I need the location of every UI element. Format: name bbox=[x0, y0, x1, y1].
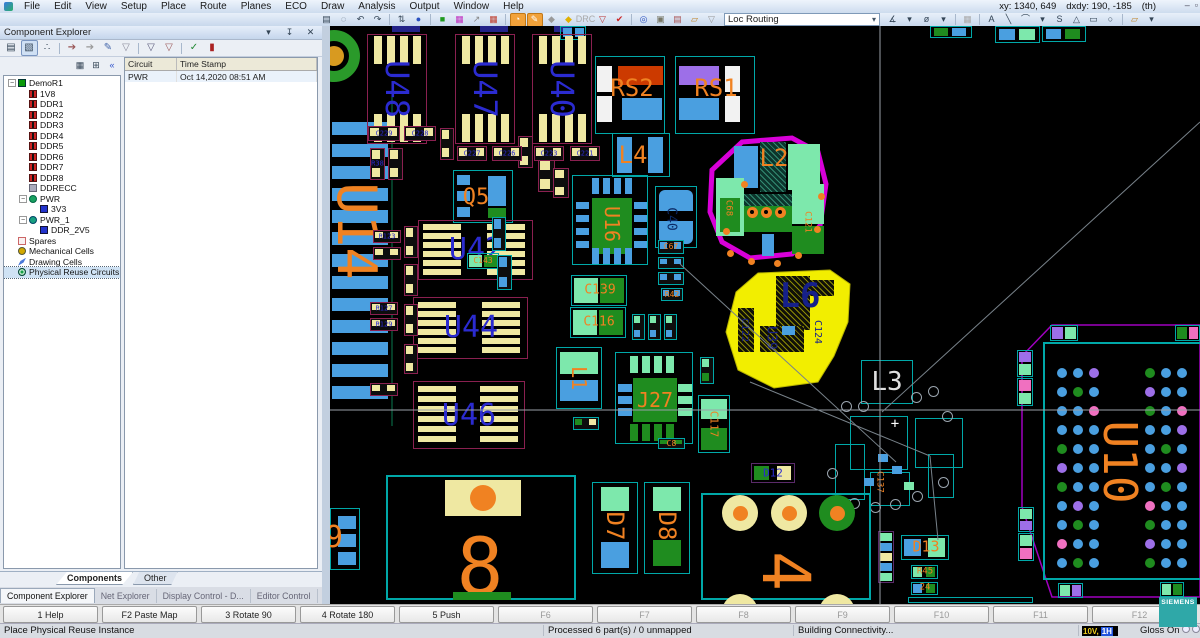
pcb-shape bbox=[782, 326, 795, 335]
menu-planes[interactable]: Planes bbox=[234, 1, 279, 12]
filter-icon[interactable]: ▽ bbox=[704, 13, 720, 27]
angle-mode-icon[interactable]: ∡ bbox=[885, 13, 901, 27]
tab-other[interactable]: Other bbox=[133, 572, 178, 585]
pad-circle bbox=[912, 491, 923, 502]
pcb-shape bbox=[934, 28, 948, 36]
ckt-icon bbox=[29, 163, 37, 171]
dd-icon[interactable]: ▾ bbox=[1035, 13, 1051, 27]
pad-circle bbox=[841, 401, 852, 412]
grid-snap-icon[interactable]: ▦ bbox=[960, 13, 976, 27]
pcb-shape bbox=[913, 584, 922, 593]
layers-icon[interactable]: ▦ bbox=[452, 13, 468, 27]
pcb-shape bbox=[653, 487, 681, 511]
undo-icon[interactable]: ↶ bbox=[353, 13, 369, 27]
main-toolbar: ▤◌↶↷⇅●■▦↗▦◔✎◆◆DRC▽✔◎▣▤▱▽ Loc Routing ▾ ∡… bbox=[0, 13, 1200, 26]
circuit-table: CircuitTime StampPWROct 14,2020 08:51 AM bbox=[124, 57, 318, 569]
pcb-shape bbox=[633, 378, 677, 422]
pcb-shape bbox=[880, 543, 892, 551]
menu-output[interactable]: Output bbox=[403, 1, 447, 12]
pad-circle bbox=[470, 485, 496, 511]
pcb-shape bbox=[725, 96, 740, 122]
ckt-icon bbox=[29, 142, 37, 150]
tree-item-1v8[interactable]: 1V8 bbox=[4, 89, 120, 100]
dd-icon[interactable]: ▾ bbox=[902, 13, 918, 27]
pcb-shape bbox=[725, 66, 740, 92]
ckt-icon bbox=[29, 132, 37, 140]
pad-circle bbox=[741, 181, 748, 188]
pad-circle bbox=[890, 499, 901, 510]
pcb-shape bbox=[762, 234, 774, 256]
pad-circle bbox=[818, 193, 825, 200]
pad-circle bbox=[723, 228, 730, 235]
menu-bar: FileEditViewSetupPlaceRoutePlanesECODraw… bbox=[0, 0, 1200, 13]
ckt-icon bbox=[29, 90, 37, 98]
table-header-circuit[interactable]: Circuit bbox=[125, 58, 177, 70]
pcb-shape bbox=[1020, 509, 1032, 519]
tree-item-ddr2[interactable]: DDR2 bbox=[4, 110, 120, 121]
ckt-icon bbox=[29, 121, 37, 129]
reuse-icon bbox=[18, 268, 26, 276]
batch-drc-icon[interactable]: ✔ bbox=[612, 13, 628, 27]
scheme-combo-value: Loc Routing bbox=[728, 14, 779, 25]
tab-editor-control[interactable]: Editor Control bbox=[251, 589, 318, 603]
pcb-shape bbox=[1019, 352, 1031, 362]
cursor-xy: xy: 1340, 649 bbox=[999, 1, 1056, 12]
status-processed: Processed 6 part(s) / 0 unmapped bbox=[548, 625, 692, 636]
chevron-down-icon: ▾ bbox=[872, 15, 876, 24]
pad-circle bbox=[764, 210, 768, 214]
pwr2-icon bbox=[29, 216, 37, 224]
pad-circle bbox=[827, 468, 838, 479]
component-outline[interactable] bbox=[908, 597, 1033, 603]
pcb-shape bbox=[1019, 393, 1031, 404]
online-drc-icon[interactable]: ◔ bbox=[510, 13, 526, 27]
pkg-icon bbox=[18, 79, 26, 87]
menu-help[interactable]: Help bbox=[496, 1, 531, 12]
status-prompt: Place Physical Reuse Instance bbox=[4, 625, 134, 636]
pcb-shape bbox=[880, 563, 892, 571]
promote-icon[interactable]: ⇅ bbox=[394, 13, 410, 27]
tree-item-physical-reuse-circuits[interactable]: Physical Reuse Circuits bbox=[4, 267, 120, 278]
tree-item-ddr4[interactable]: DDR4 bbox=[4, 131, 120, 142]
pad-circle bbox=[774, 260, 781, 267]
pcb-shape bbox=[1072, 585, 1081, 596]
pin-icon[interactable]: ↧ bbox=[282, 26, 298, 40]
pcb-shape bbox=[469, 255, 482, 267]
pcb-shape bbox=[744, 194, 792, 206]
pcb-shape bbox=[453, 592, 511, 600]
ckt-icon bbox=[29, 111, 37, 119]
line-tool-icon[interactable]: ╲ bbox=[1001, 13, 1017, 27]
pcb-shape bbox=[1162, 584, 1171, 595]
pcb-shape bbox=[1019, 29, 1035, 40]
menu-window[interactable]: Window bbox=[447, 1, 497, 12]
tab-net-explorer[interactable]: Net Explorer bbox=[95, 589, 157, 603]
filter-icon[interactable]: ▽ bbox=[118, 40, 135, 56]
collapse-icon[interactable]: « bbox=[105, 58, 120, 72]
hazard-on-icon[interactable]: ◆ bbox=[561, 13, 577, 27]
coordinate-readout: xy: 1340, 649 dxdy: 190, -185 (th) bbox=[999, 1, 1156, 12]
layer-badge: 10V, 1H bbox=[1082, 626, 1118, 636]
pcb-shape bbox=[597, 66, 612, 92]
review-hazards-icon[interactable]: ▽ bbox=[595, 13, 611, 27]
hazard-off-icon[interactable]: ◆ bbox=[544, 13, 560, 27]
dropdown-icon[interactable]: ▾ bbox=[261, 26, 277, 40]
menu-place[interactable]: Place bbox=[154, 1, 193, 12]
pcb-shape bbox=[1065, 29, 1080, 39]
pad-circle bbox=[870, 502, 881, 513]
folder-icon[interactable]: ▱ bbox=[687, 13, 703, 27]
pad-circle bbox=[928, 386, 939, 397]
pcb-shape bbox=[597, 96, 612, 122]
edit-enable-icon[interactable]: ✎ bbox=[527, 13, 543, 27]
pcb-shape bbox=[560, 352, 598, 374]
paste-icon[interactable]: ▤ bbox=[670, 13, 686, 27]
pad-circle bbox=[938, 477, 949, 488]
pad-circle bbox=[911, 392, 922, 403]
pcb-shape bbox=[1177, 327, 1187, 339]
blue-icon bbox=[40, 205, 48, 213]
menu-route[interactable]: Route bbox=[193, 1, 234, 12]
pad-circle bbox=[727, 250, 734, 257]
pcb-shape bbox=[1173, 584, 1182, 595]
pcb-shape bbox=[601, 542, 629, 568]
fkey-f7[interactable]: F7 bbox=[597, 606, 692, 623]
rect-tool-icon[interactable]: ▭ bbox=[1086, 13, 1102, 27]
table-header-time-stamp[interactable]: Time Stamp bbox=[177, 58, 317, 70]
ckt-icon bbox=[29, 100, 37, 108]
fkey-f9[interactable]: F9 bbox=[795, 606, 890, 623]
pcb-shape bbox=[1019, 380, 1031, 391]
fkey-4-rotate-180[interactable]: 4 Rotate 180 bbox=[300, 606, 395, 623]
app-icon bbox=[4, 2, 13, 11]
props-icon[interactable]: ▱ bbox=[1127, 13, 1143, 27]
pcb-shape bbox=[573, 310, 597, 335]
tree-item-pwr[interactable]: −PWR bbox=[4, 194, 120, 205]
pcb-shape bbox=[1046, 29, 1061, 39]
fkey-f10[interactable]: F10 bbox=[894, 606, 989, 623]
overflow-icon[interactable]: ▾ bbox=[1144, 13, 1160, 27]
pad-circle bbox=[830, 506, 845, 521]
pcb-shape bbox=[738, 308, 754, 352]
component-explorer-panel: Component Explorer ▾↧✕ ▤▧∴➔➔✎▽▽▽✓▮ ▦⊞« −… bbox=[0, 26, 323, 604]
tab-component-explorer[interactable]: Component Explorer bbox=[0, 588, 95, 603]
tree-item-ddr3[interactable]: DDR3 bbox=[4, 120, 120, 131]
pad-circle bbox=[814, 226, 821, 233]
pcb-canvas[interactable]: U14U48U47U40RS2RS1L4Q5U16C40U42U44U46C14… bbox=[330, 26, 1200, 604]
pad-circle bbox=[795, 252, 802, 259]
siemens-logo: SIEMENS bbox=[1159, 597, 1197, 627]
pcb-shape bbox=[560, 380, 598, 401]
pcb-shape bbox=[880, 573, 892, 581]
gear-icon bbox=[18, 247, 26, 255]
panel-inner-tabs: ComponentsOther bbox=[0, 571, 322, 587]
pcb-shape bbox=[776, 276, 810, 330]
save-icon[interactable]: ▤ bbox=[319, 13, 335, 27]
pcb-shape bbox=[1020, 521, 1032, 530]
table-row[interactable]: PWROct 14,2020 08:51 AM bbox=[125, 71, 317, 82]
fill-display-icon[interactable]: ■ bbox=[435, 13, 451, 27]
pcb-shape bbox=[1189, 327, 1198, 339]
pcb-shape bbox=[880, 533, 892, 541]
pcb-shape bbox=[392, 26, 420, 32]
pcb-shape bbox=[880, 553, 892, 561]
select-doc-icon[interactable]: ▤ bbox=[3, 40, 20, 56]
pad-circle bbox=[733, 506, 748, 521]
pcb-shape bbox=[600, 278, 624, 303]
grid-icon[interactable]: ▦ bbox=[486, 13, 502, 27]
tree-item-ddr6[interactable]: DDR6 bbox=[4, 152, 120, 163]
cross-probe-icon[interactable]: ↗ bbox=[469, 13, 485, 27]
tab-display-control-d-[interactable]: Display Control - D... bbox=[157, 589, 251, 603]
library-icon[interactable]: ▮ bbox=[204, 40, 221, 56]
status-bar: Place Physical Reuse Instance Processed … bbox=[0, 623, 1200, 638]
paw-icon[interactable]: ∴ bbox=[39, 40, 56, 56]
pcb-shape bbox=[701, 399, 727, 419]
menu-eco[interactable]: ECO bbox=[278, 1, 314, 12]
find-icon[interactable]: ◌ bbox=[336, 13, 352, 27]
tree-item-3v3[interactable]: 3V3 bbox=[4, 204, 120, 215]
pcb-shape bbox=[864, 478, 874, 486]
pcb-shape bbox=[701, 421, 727, 428]
panel-toolbar: ▤▧∴➔➔✎▽▽▽✓▮ bbox=[0, 40, 322, 57]
pcb-shape bbox=[904, 539, 921, 556]
close-icon[interactable]: ✕ bbox=[303, 26, 319, 40]
pcb-shape bbox=[760, 142, 786, 192]
spline-tool-icon[interactable]: S bbox=[1052, 13, 1068, 27]
function-key-bar: 1 HelpF2 Paste Map3 Rotate 904 Rotate 18… bbox=[0, 604, 1200, 624]
pcb-shape bbox=[913, 567, 922, 577]
filter-off-icon[interactable]: ▽ bbox=[161, 40, 178, 56]
pcb-shape bbox=[599, 310, 623, 335]
redo-icon[interactable]: ↷ bbox=[370, 13, 386, 27]
pcb-shape bbox=[999, 29, 1015, 40]
pcb-shape bbox=[720, 198, 740, 232]
application-window: FileEditViewSetupPlaceRoutePlanesECODraw… bbox=[0, 0, 1200, 638]
pcb-shape bbox=[1065, 327, 1076, 339]
place-icon[interactable]: ➔ bbox=[64, 40, 81, 56]
fkey-f6[interactable]: F6 bbox=[498, 606, 593, 623]
pcb-shape bbox=[1019, 364, 1031, 375]
menu-setup[interactable]: Setup bbox=[114, 1, 154, 12]
circle-tool-icon[interactable]: ○ bbox=[1103, 13, 1119, 27]
menu-items: FileEditViewSetupPlaceRoutePlanesECODraw… bbox=[17, 1, 531, 12]
pcb-shape bbox=[480, 26, 508, 32]
grid-view-icon[interactable]: ▦ bbox=[73, 58, 88, 72]
pcb-shape bbox=[484, 255, 497, 267]
pcb-shape bbox=[792, 184, 824, 224]
pcb-shape bbox=[592, 198, 632, 254]
drc-window-icon[interactable]: DRC bbox=[578, 13, 594, 27]
tree-item-ddr8[interactable]: DDR8 bbox=[4, 173, 120, 184]
pcb-shape bbox=[1060, 585, 1070, 596]
pcb-shape bbox=[618, 66, 663, 85]
restore-icon[interactable]: ▫ bbox=[1195, 0, 1198, 10]
fkey-f2-paste-map[interactable]: F2 Paste Map bbox=[102, 606, 197, 623]
pcb-shape bbox=[622, 98, 662, 120]
pcb-shape bbox=[952, 28, 966, 36]
arc-tool-icon[interactable]: ⌒ bbox=[1018, 13, 1034, 27]
pcb-shape bbox=[659, 211, 693, 221]
pcb-shape bbox=[488, 176, 506, 206]
minimize-icon[interactable]: – bbox=[1185, 0, 1190, 10]
component-outline[interactable] bbox=[861, 360, 913, 404]
pcb-shape bbox=[928, 538, 945, 557]
ckt-icon bbox=[29, 174, 37, 182]
pad-mode-icon[interactable]: ø bbox=[919, 13, 935, 27]
pcb-shape bbox=[617, 137, 632, 173]
panel-title: Component Explorer bbox=[4, 27, 91, 38]
place-all-icon[interactable]: ➔ bbox=[82, 40, 99, 56]
menu-file[interactable]: File bbox=[17, 1, 47, 12]
status-building: Building Connectivity... bbox=[798, 625, 893, 636]
copy-icon[interactable]: ▣ bbox=[653, 13, 669, 27]
fkey-f11[interactable]: F11 bbox=[993, 606, 1088, 623]
pcb-shape bbox=[777, 466, 791, 480]
gray-icon bbox=[29, 184, 37, 192]
dd-icon[interactable]: ▾ bbox=[936, 13, 952, 27]
circuit-tree: −DemoR11V8DDR1DDR2DDR3DDR4DDR5DDR6DDR7DD… bbox=[3, 75, 121, 569]
pcb-shape bbox=[878, 454, 888, 462]
pcb-shape bbox=[892, 466, 902, 474]
pad-circle bbox=[942, 411, 953, 422]
zoom-icon[interactable]: ◎ bbox=[636, 13, 652, 27]
pcb-shape bbox=[1020, 548, 1032, 559]
pad-circle bbox=[858, 401, 869, 412]
tree-item-ddr-2v5[interactable]: DDR_2V5 bbox=[4, 225, 120, 236]
pcb-shape bbox=[601, 487, 629, 511]
polygon-tool-icon[interactable]: △ bbox=[1069, 13, 1085, 27]
menu-view[interactable]: View bbox=[78, 1, 114, 12]
pcb-shape bbox=[574, 278, 598, 303]
pencil-icon bbox=[18, 258, 26, 266]
component-outline[interactable] bbox=[835, 444, 865, 500]
fkey-1-help[interactable]: 1 Help bbox=[3, 606, 98, 623]
tree-item-pwr-1[interactable]: −PWR_1 bbox=[4, 215, 120, 226]
pcb-shape bbox=[926, 584, 935, 593]
tree-item-ddr5[interactable]: DDR5 bbox=[4, 141, 120, 152]
pcb-shape bbox=[648, 137, 663, 173]
scheme-combo[interactable]: Loc Routing ▾ bbox=[724, 13, 880, 26]
tree-item-ddrecc[interactable]: DDRECC bbox=[4, 183, 120, 194]
fkey-f8[interactable]: F8 bbox=[696, 606, 791, 623]
ckt-icon bbox=[29, 153, 37, 161]
panel-splitter[interactable] bbox=[322, 26, 330, 604]
pcb-shape bbox=[1052, 327, 1063, 339]
blue-icon bbox=[40, 226, 48, 234]
pcb-shape bbox=[679, 66, 719, 85]
panel-selector-tabs: Component ExplorerNet ExplorerDisplay Co… bbox=[0, 587, 322, 604]
text-tool-icon[interactable]: A bbox=[984, 13, 1000, 27]
pcb-shape bbox=[653, 540, 681, 566]
pcb-shape bbox=[810, 280, 834, 296]
tree-item-spares[interactable]: Spares bbox=[4, 236, 120, 247]
units-label: (th) bbox=[1142, 1, 1156, 12]
pad-circle bbox=[750, 210, 754, 214]
pad-circle bbox=[748, 258, 755, 265]
tree-item-ddr1[interactable]: DDR1 bbox=[4, 99, 120, 110]
menu-edit[interactable]: Edit bbox=[47, 1, 78, 12]
menu-draw[interactable]: Draw bbox=[314, 1, 351, 12]
fkey-3-rotate-90[interactable]: 3 Rotate 90 bbox=[201, 606, 296, 623]
component-outline[interactable] bbox=[928, 454, 954, 498]
pwr-icon bbox=[29, 195, 37, 203]
filter-on-icon[interactable]: ▽ bbox=[143, 40, 160, 56]
tree-item-demor1[interactable]: −DemoR1 bbox=[4, 78, 120, 89]
menu-analysis[interactable]: Analysis bbox=[351, 1, 402, 12]
cursor-dxdy: dxdy: 190, -185 bbox=[1066, 1, 1132, 12]
user-icon[interactable]: ● bbox=[411, 13, 427, 27]
tree-item-drawing-cells[interactable]: Drawing Cells bbox=[4, 257, 120, 268]
pcb-shape bbox=[904, 482, 914, 490]
spare-icon bbox=[18, 237, 26, 245]
pcb-shape bbox=[1020, 535, 1032, 546]
tab-components[interactable]: Components bbox=[56, 572, 133, 585]
pcb-shape bbox=[926, 567, 935, 577]
edit-icon[interactable]: ✎ bbox=[100, 40, 117, 56]
pcb-shape bbox=[679, 98, 719, 120]
verify-icon[interactable]: ✓ bbox=[186, 40, 203, 56]
pad-circle bbox=[778, 210, 782, 214]
tree-item-mechanical-cells[interactable]: Mechanical Cells bbox=[4, 246, 120, 257]
refdes-label: C124 bbox=[812, 320, 822, 344]
pcb-shape bbox=[701, 428, 727, 450]
detail-view-icon[interactable]: ⊞ bbox=[89, 58, 104, 72]
fkey-5-push[interactable]: 5 Push bbox=[399, 606, 494, 623]
pcb-shape bbox=[754, 466, 769, 480]
select-area-icon[interactable]: ▧ bbox=[21, 40, 38, 56]
pad-circle bbox=[782, 506, 797, 521]
tree-item-ddr7[interactable]: DDR7 bbox=[4, 162, 120, 173]
